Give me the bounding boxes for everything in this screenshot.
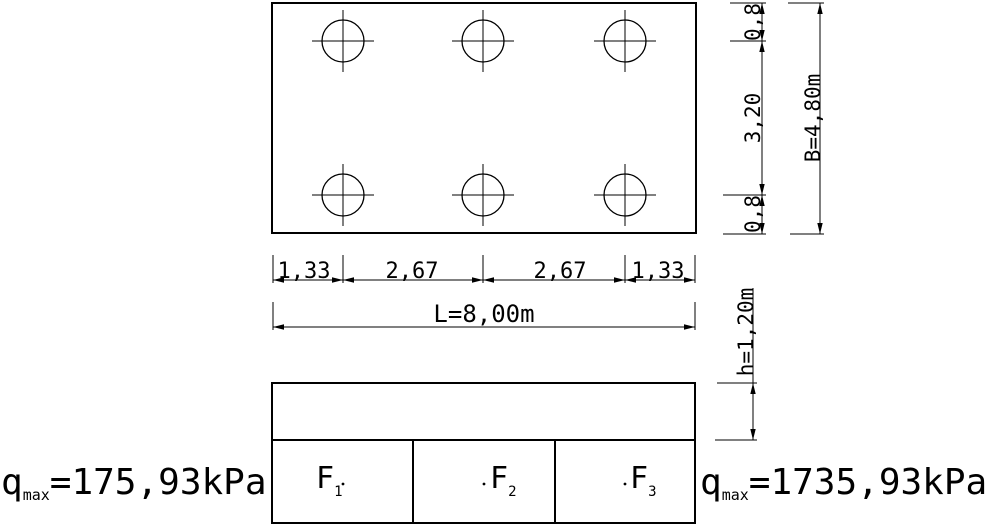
dim-chain-label-3: 2,67 <box>534 259 587 284</box>
plan-view-outline <box>272 3 696 233</box>
dim-width-seg-label-3: 0,8 <box>741 195 765 233</box>
dim-width-seg-label-2: 3,20 <box>741 93 765 144</box>
footing-label-f3: F3 <box>630 461 657 500</box>
dim-height-label: h=1,20m <box>734 288 758 377</box>
footing-label-f2: F2 <box>490 461 517 500</box>
footing-center-dot-3 <box>624 483 627 486</box>
pile-circles <box>322 20 646 216</box>
foundation-drawing: 1,33 2,67 2,67 1,33 L=8,00m 0,8 3,20 0,8… <box>0 0 990 526</box>
dim-chain-label-2: 2,67 <box>386 259 439 284</box>
pressure-left-label: qmax=175,93kPa <box>1 462 267 504</box>
pressure-right-label: qmax=1735,93kPa <box>700 462 987 504</box>
drawing-canvas: 1,33 2,67 2,67 1,33 L=8,00m 0,8 3,20 0,8… <box>0 0 990 526</box>
elevation-view-outline <box>272 383 695 523</box>
dim-length-label: L=8,00m <box>433 300 534 328</box>
dim-chain-label-4: 1,33 <box>632 259 685 284</box>
dim-width-total-label: B=4,80m <box>801 74 825 163</box>
footing-label-f1: F1 <box>316 461 343 500</box>
dim-width-seg-label-1: 0,8 <box>741 3 765 41</box>
dim-height-extension-ticks <box>715 383 757 440</box>
dim-chain-label-1: 1,33 <box>278 259 331 284</box>
footing-center-dot-2 <box>483 483 486 486</box>
